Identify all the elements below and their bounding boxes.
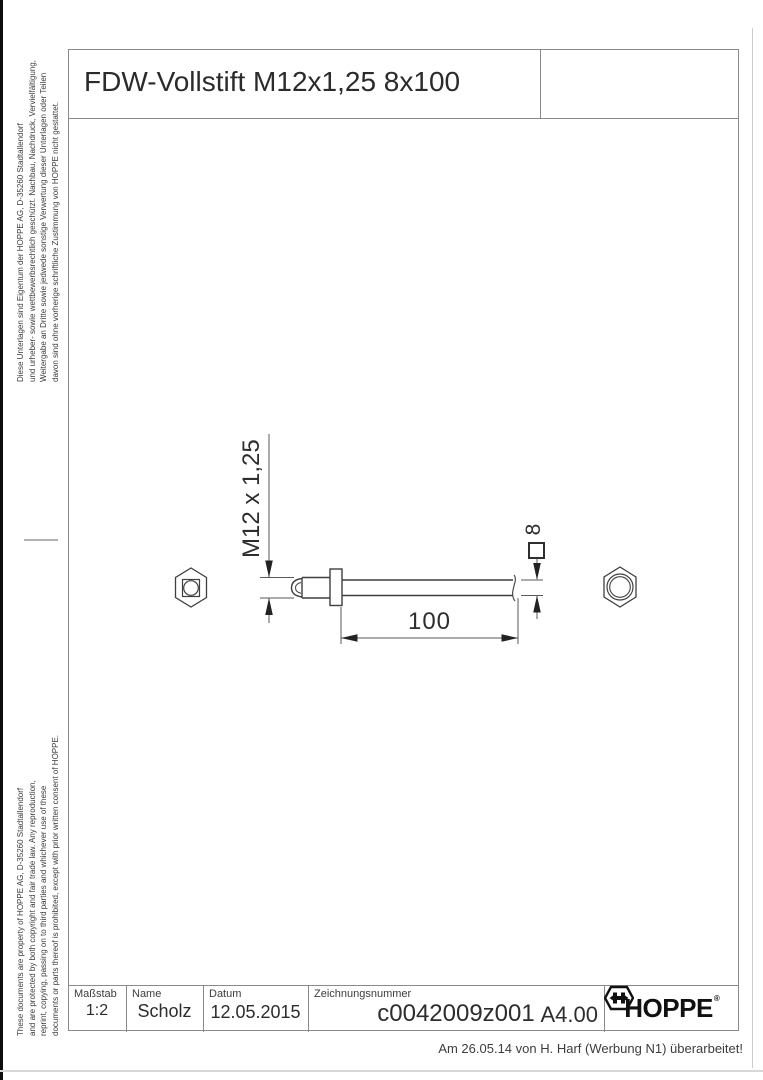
page-title: FDW-Vollstift M12x1,25 8x100 <box>84 66 460 98</box>
legal-en-line-4: documents or parts thereof is prohibited… <box>50 714 62 1036</box>
drawing-number-label: Zeichnungsnummer <box>314 988 411 1000</box>
legal-de-line-3: Weitergabe an Dritte sowie jedwede sonst… <box>38 44 50 382</box>
square-section-icon <box>528 542 545 559</box>
scale-label: Maßstab <box>74 988 117 1000</box>
date-value: 12.05.2015 <box>203 1002 308 1023</box>
revision-note: Am 26.05.14 von H. Harf (Werbung N1) übe… <box>400 1041 743 1056</box>
legal-en-line-1: These documents are property of HOPPE AG… <box>15 714 27 1036</box>
legal-de-line-2: und urheber- sowie wettbewerbsrechtlich … <box>27 44 39 382</box>
hoppe-logo: HOPPE ® <box>604 985 740 1032</box>
page-edge-left-bar <box>0 0 3 1080</box>
square-dimension-label: 8 <box>521 517 546 542</box>
name-value: Scholz <box>126 1001 203 1022</box>
registered-trademark-icon: ® <box>714 994 720 1003</box>
title-box-divider <box>540 49 541 118</box>
legal-de-line-4: davon sind ohne vorherige schriftliche Z… <box>50 44 62 382</box>
legal-de-line-1: Diese Unterlagen sind Eigentum der HOPPE… <box>15 44 27 382</box>
legal-text-german: Diese Unterlagen sind Eigentum der HOPPE… <box>15 44 63 382</box>
length-dimension-label: 100 <box>353 608 506 636</box>
drawing-frame <box>68 49 739 1031</box>
legal-en-line-2: and are protected by both copyright and … <box>27 714 39 1036</box>
thread-dimension-label: M12 x 1,25 <box>236 432 268 558</box>
date-label: Datum <box>209 988 241 1000</box>
legal-en-line-3: reprint, copying, passing on to third pa… <box>38 714 50 1036</box>
name-label: Name <box>132 988 161 1000</box>
page-edge-bottom-shadow <box>0 1070 763 1072</box>
format-value: A4.00 <box>500 1002 598 1028</box>
scale-value: 1:2 <box>68 1002 126 1020</box>
page-edge-right-shadow <box>752 28 753 1068</box>
hoppe-logo-text: HOPPE <box>624 993 713 1024</box>
title-box-bottom-line <box>68 118 739 119</box>
legal-text-english: These documents are property of HOPPE AG… <box>15 714 63 1036</box>
